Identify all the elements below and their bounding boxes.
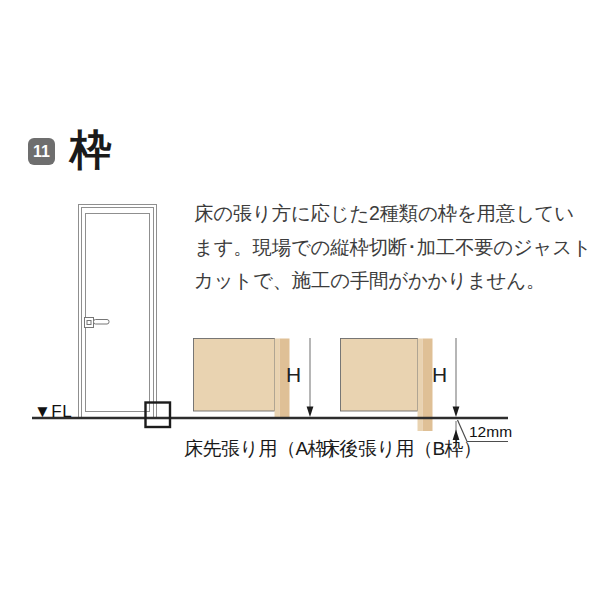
description-line: ます。現場での縦枠切断･加工不要のジャスト (194, 231, 592, 265)
frame-band-a (275, 339, 280, 418)
technical-drawing (0, 0, 600, 600)
description-paragraph: 床の張り方に応じた2種類の枠を用意してい ます。現場での縦枠切断･加工不要のジャ… (194, 197, 592, 298)
description-line: カットで、施工の手間がかかりません。 (194, 264, 592, 298)
page-title: 枠 (70, 127, 113, 173)
door-illustration (79, 205, 157, 419)
diagram-b-caption: 床後張り用（B枠） (321, 436, 453, 462)
height-label-a: H (286, 363, 301, 387)
section-number-badge: 11 (28, 138, 55, 165)
down-arrow-icon (453, 407, 460, 418)
description-line: 床の張り方に応じた2種類の枠を用意してい (194, 197, 592, 231)
down-arrow-icon (307, 407, 314, 418)
height-label-b: H (432, 363, 447, 387)
page: 11 枠 床の張り方に応じた2種類の枠を用意してい ます。現場での縦枠切断･加工… (0, 0, 600, 600)
floor-level-label: ▼FL (34, 402, 72, 422)
wall-block-a (194, 339, 275, 412)
diagram-a-caption: 床先張り用（A枠） (184, 436, 314, 462)
door-leaf (86, 214, 150, 412)
wall-block-b (341, 339, 418, 412)
